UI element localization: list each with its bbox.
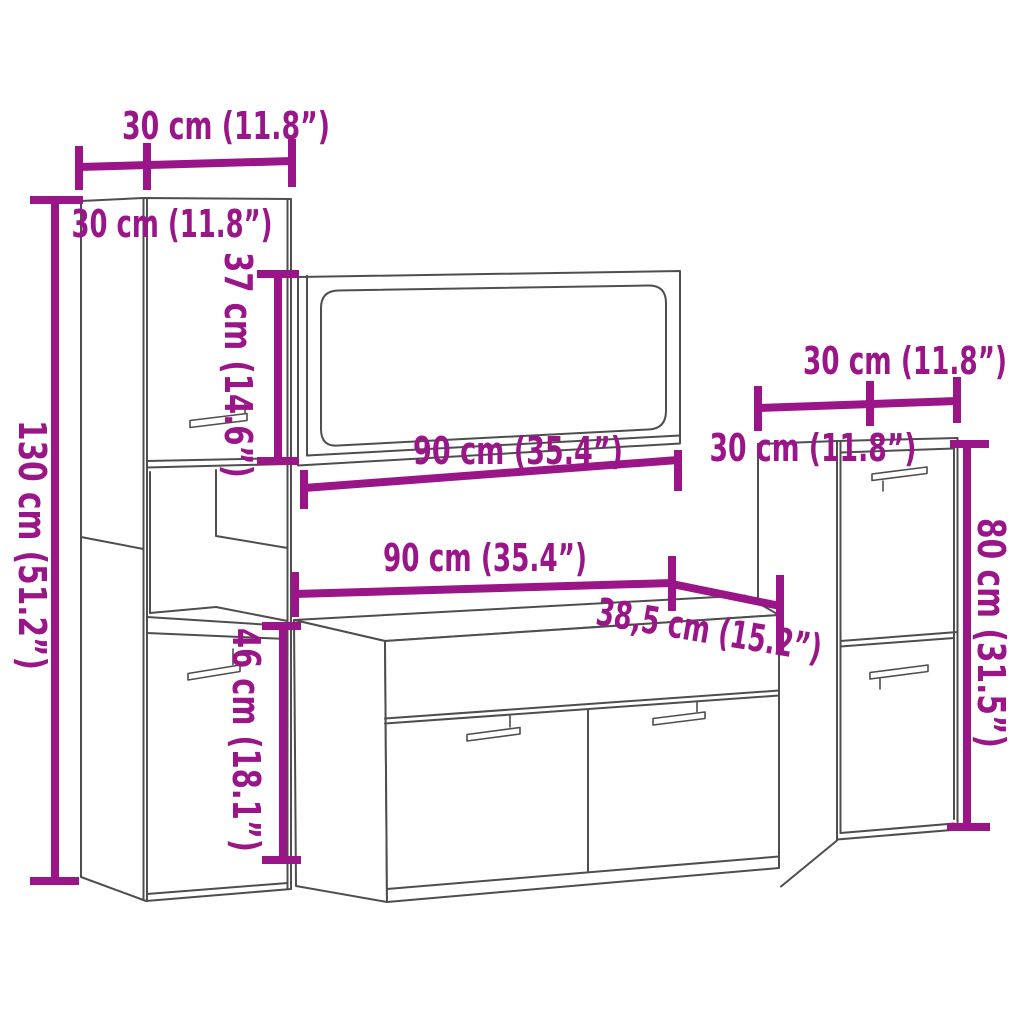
dim-label-tall-height: 130 cm (51.2”) <box>10 420 54 670</box>
dim-label-tall-depth: 30 cm (11.8”) <box>72 202 273 246</box>
wall-lower-door-handle <box>870 665 928 679</box>
dim-label-wall-width: 30 cm (11.8”) <box>803 339 1007 383</box>
dim-tall-cabinet-width: 30 cm (11.8”) <box>79 104 330 190</box>
dim-label-mirror-width: 90 cm (35.4”) <box>413 429 623 473</box>
dim-label-wall-depth: 30 cm (11.8”) <box>710 426 917 470</box>
dim-line <box>758 401 957 408</box>
diagram-canvas: 30 cm (11.8”) 30 cm (11.8”) 130 cm (51.2… <box>0 0 1024 1024</box>
dim-label-tall-lower: 46 cm (18.1”) <box>224 628 268 852</box>
dim-label-tall-upper: 37 cm (14.6”) <box>216 252 260 478</box>
wall-cabinet-side-bottom-edge <box>781 841 837 887</box>
dim-line <box>79 161 292 167</box>
dim-label-tall-width: 30 cm (11.8”) <box>122 104 330 148</box>
dim-tall-cabinet-height: 130 cm (51.2”) <box>10 200 83 881</box>
dim-wall-cabinet-width: 30 cm (11.8”) <box>758 339 1007 431</box>
dim-label-vanity-width: 90 cm (35.4”) <box>383 536 587 580</box>
dim-label-wall-height: 80 cm (31.5”) <box>969 518 1013 748</box>
vanity-front-face <box>385 615 779 902</box>
vanity-side-face <box>294 620 387 902</box>
bathroom-furniture-dimension-diagram: 30 cm (11.8”) 30 cm (11.8”) 130 cm (51.2… <box>0 0 1024 1024</box>
